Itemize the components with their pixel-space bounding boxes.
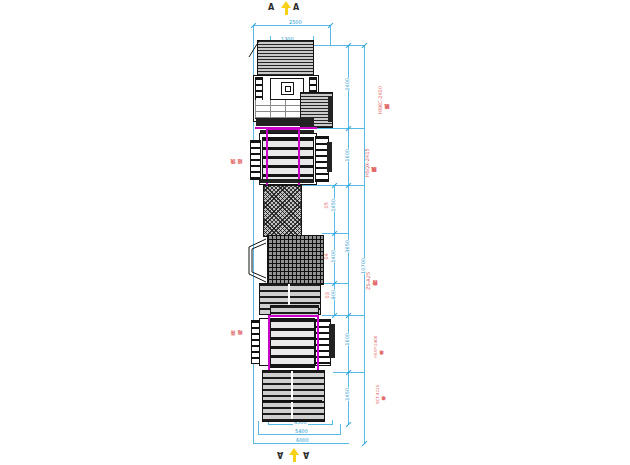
label-washer-name: 玻璃清洗机: [372, 129, 378, 177]
label-loader-name: 玻璃上片机: [385, 66, 391, 114]
section-marker-top-left: A: [268, 3, 274, 12]
flow-arrow-bottom-stem: [293, 455, 296, 462]
label-washer-infeed: 清洗段 进片端: [231, 137, 243, 169]
label-outfeed-model: SCT-4225: [376, 384, 381, 404]
flow-arrow-bottom-icon: [289, 448, 299, 455]
label-turning-table-model: ZS-A25: [366, 244, 372, 290]
label-unload-outfeed-line2: 出片端: [238, 308, 244, 340]
label-unload-outfeed-line1: 下片段: [231, 308, 237, 340]
label-outfeed-name: 出片输送台: [382, 384, 387, 404]
section-marker-bottom-left: A: [277, 450, 283, 459]
label-washer-infeed-line2: 进片端: [238, 137, 244, 169]
label-outfeed: SCT-4225 出片输送台: [376, 384, 386, 404]
label-washer-model: HSQX-2415: [365, 129, 371, 177]
label-unloader: HSXP-2400 玻璃下片机: [374, 338, 384, 358]
cad-drawing-canvas: 2500 1300 4500 5400 6000 1450 1400 900 2…: [0, 0, 630, 465]
label-unload-outfeed: 下片段 出片端: [231, 308, 243, 340]
label-loader: HSKC-2400 玻璃上片机: [378, 66, 390, 114]
label-turning-table: ZS-A25 自动转向台: [366, 244, 378, 290]
detail-lines-svg: [0, 0, 630, 465]
label-turning-table-name: 自动转向台: [373, 244, 379, 290]
label-unloader-name: 玻璃下片机: [380, 338, 385, 358]
section-marker-top-right: A: [293, 3, 299, 12]
section-marker-bottom-right: A: [303, 450, 309, 459]
label-washer-infeed-line1: 清洗段: [231, 137, 237, 169]
flow-arrow-top-icon: [281, 1, 291, 8]
label-unloader-model: HSXP-2400: [374, 338, 379, 358]
flow-arrow-top-stem: [285, 8, 288, 15]
label-loader-model: HSKC-2400: [378, 66, 384, 114]
label-washer: HSQX-2415 玻璃清洗机: [365, 129, 377, 177]
